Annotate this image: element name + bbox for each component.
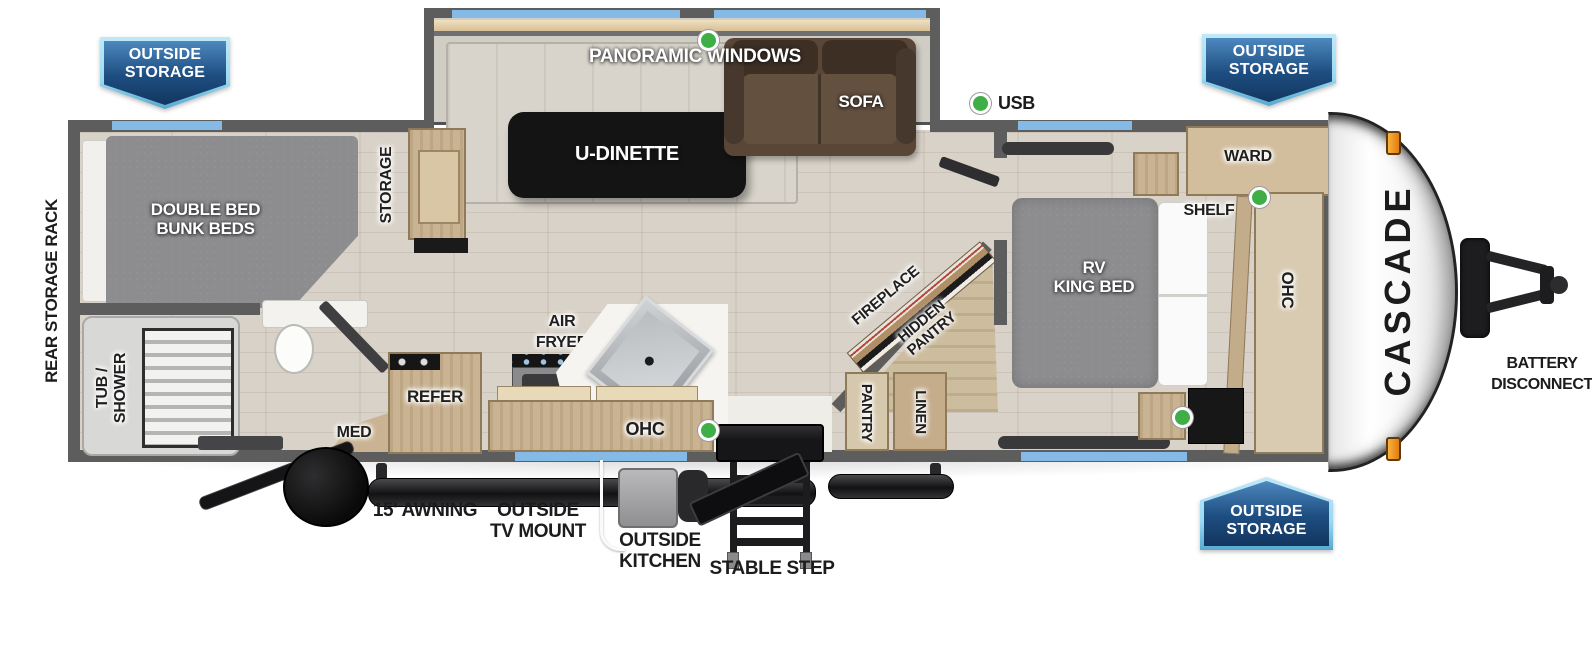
green-indicator-dot [970,93,991,114]
bed-slide-rail-top [1002,142,1114,155]
outside-storage-badge-bottom-right: OUTSIDE STORAGE [1200,477,1333,550]
storage-label: STORAGE [377,135,397,235]
awning-tube-short [828,474,954,499]
floorplan-canvas: U-DINETTE SOFA PANORAMIC WINDOWS DOUBLE … [0,0,1592,651]
bedside-cabinet-small [1133,152,1179,196]
green-indicator-dot [1172,407,1193,428]
awning-label: 15' AWNING [360,500,490,521]
sofa-label: SOFA [816,92,906,111]
marker-light-bottom [1386,437,1401,461]
bedroom-tv-cabinet [1188,388,1244,444]
hitch-plate [1460,238,1490,338]
refer-label: REFER [392,388,478,407]
brand-logo: CASCADE [1380,140,1416,440]
panoramic-windows-label: PANORAMIC WINDOWS [558,46,832,67]
storage-cabinet-base [414,238,468,253]
green-indicator-dot [698,420,719,441]
stable-step-label: STABLE STEP [698,558,846,579]
entry-mat [716,424,824,462]
bath-step [198,436,283,450]
green-indicator-dot [698,30,719,51]
marker-light-top [1386,131,1401,155]
bed-pillows [1158,202,1208,386]
outside-kitchen-griddle [618,468,678,528]
green-indicator-dot [1249,187,1270,208]
tub-shower-label: TUB / SHOWER [92,328,132,448]
linen-label: LINEN [911,362,929,462]
window-bunk [112,121,222,130]
valance [434,20,930,31]
curtain-rod [434,31,930,36]
rv-king-bed-label: RV KING BED [1032,258,1156,296]
refer-cooktop [390,354,440,370]
ohc-bedroom-label: OHC [1278,246,1296,334]
rear-storage-rack-label: REAR STORAGE RACK [42,141,62,441]
outside-storage-badge-top-right: OUTSIDE STORAGE [1202,34,1336,106]
bath-partition-wall [68,303,260,315]
slideout-window-right [714,10,926,18]
bunk-pillows [82,140,110,302]
shower-door [142,328,234,448]
window-bedroom-bottom [1021,452,1187,461]
window-bedroom-top [1018,121,1132,130]
hitch-arm-upper [1486,251,1549,276]
wall-rear-left [68,120,80,462]
med-label: MED [324,424,384,442]
tank-blob [283,447,369,527]
bedroom-wall [994,240,1007,325]
outside-tv-mount-label: OUTSIDE TV MOUNT [478,500,598,543]
storage-cabinet-panel [418,150,460,224]
hitch-arm-lower [1486,289,1549,314]
battery-disconnect-label: BATTERY DISCONNECT [1462,354,1592,396]
hitch-ball [1550,276,1568,294]
pantry-label: PANTRY [857,363,875,463]
ward-label: WARD [1190,148,1306,166]
ohc-kitchen-label: OHC [600,420,690,440]
outside-storage-badge-top-left: OUTSIDE STORAGE [100,37,230,109]
toilet [274,324,314,374]
usb-label: USB [998,93,1058,113]
u-dinette-label: U-DINETTE [508,143,746,165]
slideout-window-left [452,10,680,18]
bath-counter [262,300,368,328]
bunk-bed-label: DOUBLE BED BUNK BEDS [118,200,293,238]
